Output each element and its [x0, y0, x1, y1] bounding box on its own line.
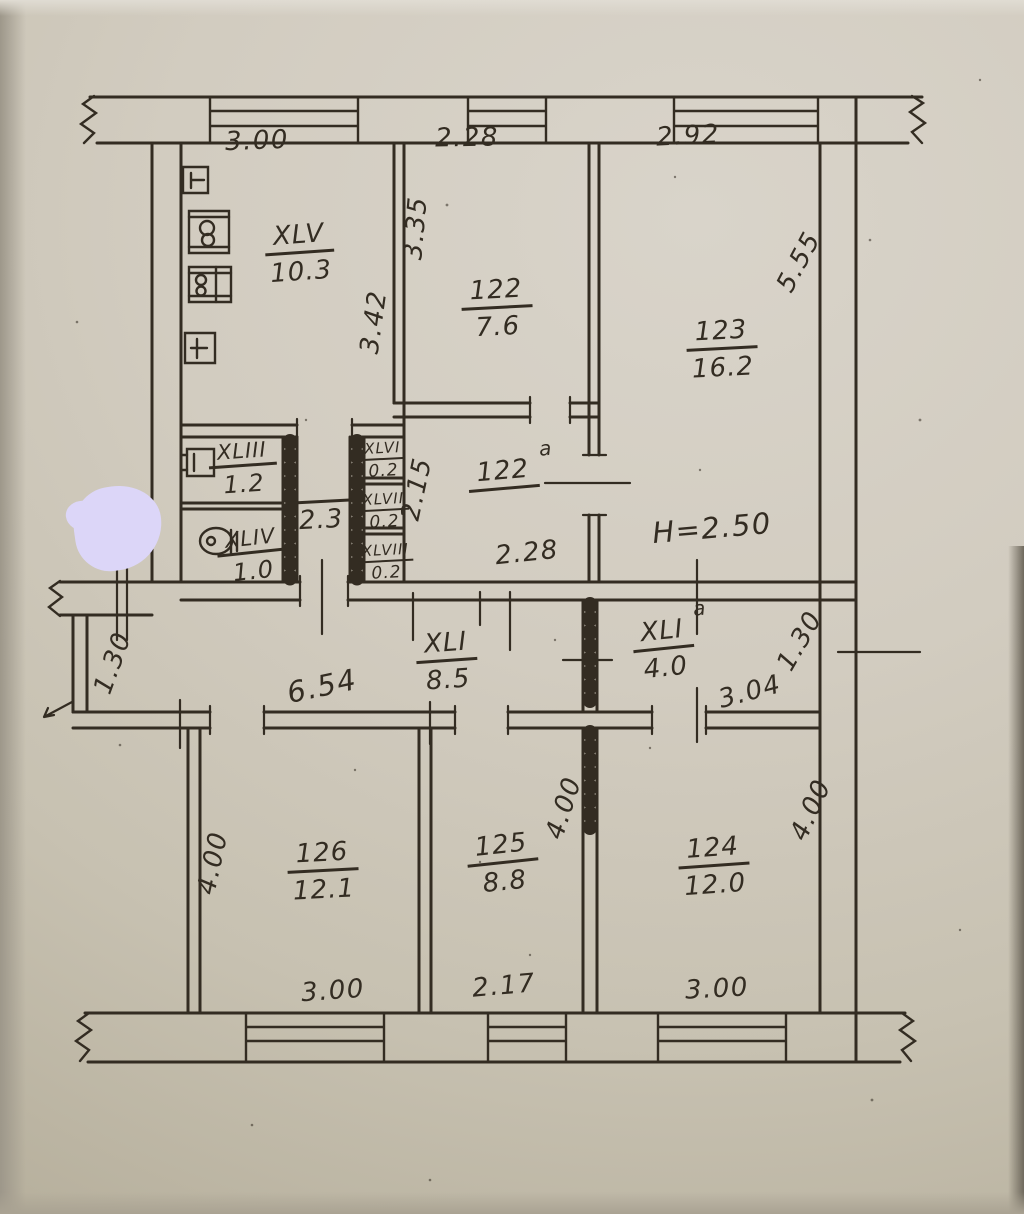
room-label-xliii: XLIII 1.2: [207, 438, 279, 501]
room-number: XLVI: [360, 440, 405, 461]
dimension-bottom-left: 3.00: [300, 974, 366, 1008]
room-number-suffix: a: [692, 597, 707, 619]
dimension-ticks: [180, 688, 697, 748]
dimension-bottom-right: 3.00: [684, 972, 749, 1005]
dimension-3-35: 3.35: [398, 195, 433, 261]
dimension-ticks: [117, 568, 127, 640]
room-label-123: 123 16.2: [685, 316, 759, 385]
wall-break-icon: [49, 581, 62, 616]
sink-icon: [189, 267, 231, 302]
dimension-bottom-mid: 2.17: [471, 968, 537, 1003]
dimension-top-right: 2.92: [655, 119, 720, 152]
dimension-arrow-icon: [44, 702, 72, 717]
appliance-icon: [185, 333, 215, 363]
wall-break-icon: [910, 96, 925, 143]
room-label-125: 125 8.8: [464, 828, 541, 900]
room-label-xlviii: XLVIII 0.2: [357, 542, 414, 585]
room-number: 126: [286, 838, 358, 874]
wall-break-icon: [76, 1013, 91, 1061]
scanned-floorplan-photo: XLV 10.3 122 7.6 123 16.2 122 a XLIII 1.…: [0, 0, 1024, 1214]
room-number: 123: [685, 316, 757, 352]
top-wall: [81, 96, 925, 143]
room-number: XLI a: [630, 615, 694, 653]
room-area: 12.1: [288, 870, 360, 907]
room-number: XLI: [414, 628, 477, 664]
wall-break-icon: [900, 1013, 915, 1061]
hall-area-label: 2.3: [288, 498, 354, 536]
window-icon: [246, 1013, 786, 1062]
room-number: XLV: [263, 220, 334, 257]
room-area: 2.3: [288, 498, 354, 536]
room-label-xlia: XLI a 4.0: [630, 615, 697, 686]
room-label-xli: XLI 8.5: [414, 628, 479, 697]
dimension-top-left: 3.00: [225, 125, 290, 157]
room-number: 122 a: [466, 455, 539, 493]
room-label-xlv: XLV 10.3: [263, 220, 337, 290]
room-area: 0.2: [358, 560, 414, 584]
room-label-122a: 122 a: [466, 455, 539, 493]
room-label-126: 126 12.1: [286, 838, 360, 907]
room-label-124: 124 12.0: [676, 833, 751, 903]
room-area: 7.6: [462, 307, 534, 344]
bottom-wall: [76, 1013, 915, 1062]
wall-break-icon: [81, 96, 96, 143]
room-number: XLVIII: [357, 542, 413, 564]
room-label-xliv: XLIV 1.0: [215, 524, 289, 589]
room-area: 10.3: [265, 252, 336, 290]
room-area: 8.5: [417, 660, 480, 697]
dimension-top-mid: 2.28: [435, 122, 499, 153]
appliance-icon: [183, 167, 208, 193]
room-area: 4.0: [634, 647, 698, 686]
room-label-xlvi: XLVI 0.2: [360, 440, 406, 482]
room-label-122: 122 7.6: [460, 275, 534, 344]
room-area: 1.2: [209, 465, 279, 501]
stove-icon: [189, 211, 229, 253]
kitchen-fixtures: [183, 167, 231, 363]
room-area: 16.2: [687, 348, 759, 385]
room-number-suffix: a: [538, 438, 553, 460]
room-area: 12.0: [679, 865, 752, 903]
window-icon: [210, 97, 818, 143]
room-number: XLIII: [207, 438, 276, 470]
room-number: 124: [676, 833, 749, 870]
room-number: 122: [460, 275, 532, 311]
wall-under-122: [394, 397, 599, 423]
corridor-walls: [44, 600, 920, 748]
floorplan-drawing: [0, 0, 1024, 1214]
room-area: 0.2: [361, 459, 406, 482]
